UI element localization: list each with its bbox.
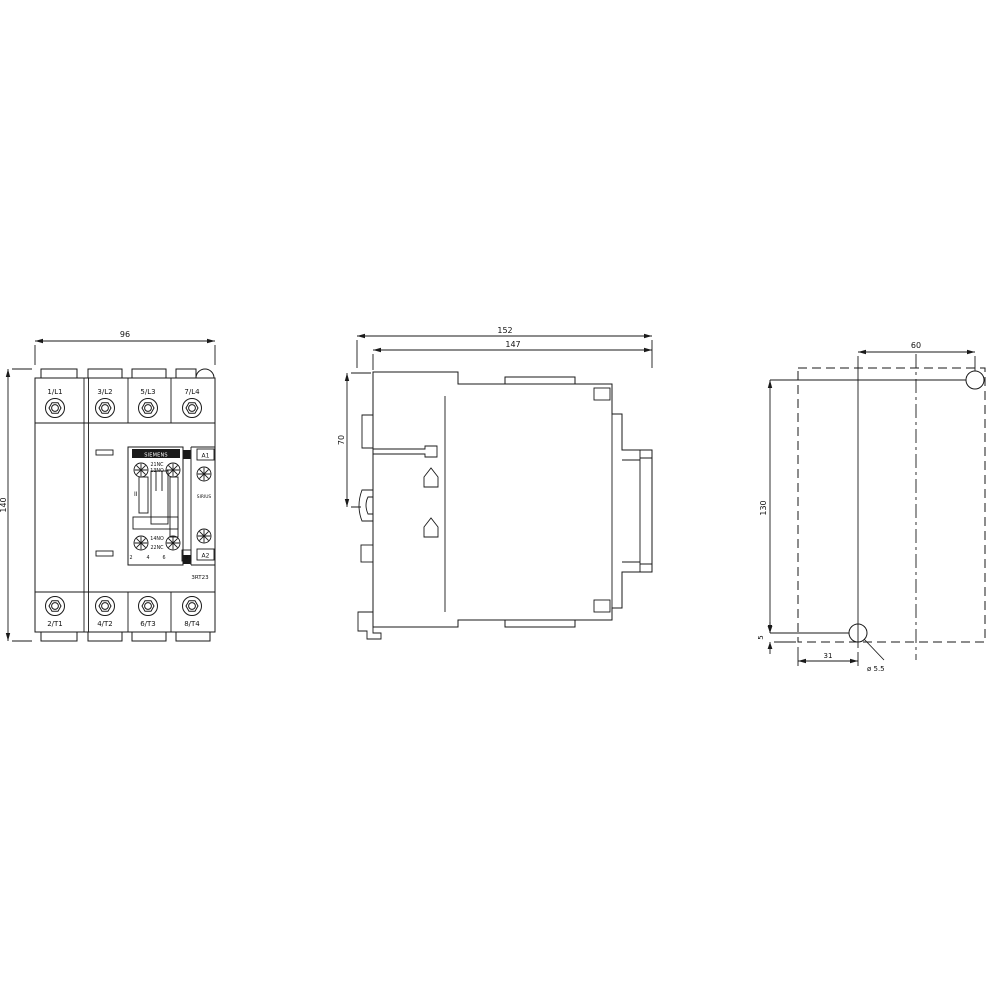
hole-edge-bottom-dimension: 5 [757,622,796,654]
mounting-hole-icon [966,371,984,389]
rail-clip [362,415,373,448]
arrowhead-icon [850,659,858,663]
side-rail-dimension: 70 [337,373,371,507]
hole-edge-side-label: 31 [824,652,833,660]
terminal-label: 3/L2 [97,388,112,396]
hole-edge-bottom-label: 5 [757,635,765,639]
coil-terminal-label: A1 [202,453,210,460]
arrowhead-icon [35,339,43,343]
connector-block [184,450,191,459]
brand-label: SIEMENS [144,453,168,459]
front-width-label: 96 [120,330,130,339]
hole-pitch-v-label: 130 [759,500,768,515]
side-detail [594,600,610,612]
vent-slot [96,551,113,556]
terminal-label: 4/T2 [97,620,113,628]
top-rib [505,377,575,384]
hole-diameter-label: ø 5.5 [867,665,885,673]
front-height-label: 140 [0,497,8,512]
aux-contact-label: 22NC [150,545,164,551]
side-detail [594,388,610,400]
screw-terminal-icon [96,399,115,418]
hole-pitch-h-dimension: 60 [858,341,975,371]
terminal-label: 6/T3 [140,620,156,628]
arrowhead-icon [207,339,215,343]
top-terminal-row: 1/L1 3/L2 5/L3 7/L4 [46,388,202,418]
screw-terminal-icon [46,597,65,616]
terminal-label: 8/T4 [184,620,200,628]
aux-screw-icon [134,463,148,477]
terminal-label: 2/T1 [47,620,63,628]
device-outline-dashed [798,368,985,642]
screw-terminal-icon [46,399,65,418]
vent-slot [96,450,113,455]
rail-clip [361,545,373,562]
mechanism-detail [151,471,168,524]
pole-digit: 2 [129,555,132,561]
screw-terminal-icon [139,597,158,616]
bottom-terminal-row: 2/T1 4/T2 6/T3 8/T4 [46,597,202,629]
screw-terminal-icon [183,399,202,418]
arrowhead-icon [644,334,652,338]
mechanism-detail [139,477,148,513]
screw-terminal-icon [183,597,202,616]
side-depth-body-dimension: 147 [373,340,652,370]
pole-digit: 8 [185,555,188,561]
bottom-rib [505,620,575,627]
mechanism-detail [156,471,162,491]
series-label: SIRIUS [197,494,212,500]
rail-hook [359,490,373,521]
mounting-view: 60 130 5 31 ø 5.5 [757,341,985,673]
arrowhead-icon [345,499,349,507]
hole-level-lines [770,380,966,633]
hole-pitch-h-label: 60 [911,341,921,350]
arrowhead-icon [858,350,866,354]
dimension-drawing: 96 140 1/L1 3/L2 5/L3 7/L4 [0,0,1000,1000]
drawing-sheet: 96 140 1/L1 3/L2 5/L3 7/L4 [0,0,1000,1000]
arrowhead-icon [798,659,806,663]
contactor-side-outline [373,372,652,627]
screw-terminal-icon [96,597,115,616]
arrowhead-icon [6,633,10,641]
pole-digit: 4 [146,555,149,561]
model-label: 3RT23 [191,575,209,581]
arrowhead-icon [373,348,381,352]
arrowhead-icon [768,642,773,649]
hole-pitch-v-dimension: 130 [759,380,772,633]
hole-diameter-callout: ø 5.5 [864,639,885,673]
side-rail-label: 70 [337,435,346,445]
pole-digit: 6 [162,555,165,561]
arrowhead-icon [357,334,365,338]
front-width-dimension: 96 [35,330,215,365]
arrowhead-icon [768,626,773,633]
coil-terminal-label: A2 [202,553,210,560]
coil-screw-icon [197,529,211,543]
aux-screw-icon [134,536,148,550]
din-rail-clips [358,415,437,639]
arrowhead-icon [768,380,772,388]
side-internal-lines [445,396,652,612]
corner-arc [196,369,214,378]
aux-contact-label: 14NO [150,536,164,542]
screw-terminal-icon [139,399,158,418]
arrowhead-icon [644,348,652,352]
nameplate-block: SIEMENS 21NC 13NO II 14NO 22NC 2 4 6 8 [128,447,215,581]
front-view: 96 140 1/L1 3/L2 5/L3 7/L4 [0,330,215,641]
terminal-label: 1/L1 [47,388,62,396]
side-depth-total-label: 152 [497,326,512,335]
hole-edge-side-dimension: 31 [798,647,858,666]
terminal-label: 7/L4 [184,388,200,396]
terminal-label: 5/L3 [140,388,155,396]
front-height-dimension: 140 [0,369,32,641]
rail-foot [358,612,381,639]
aux-contact-label: 21NC [150,462,164,468]
mechanism-detail [170,477,178,537]
latch-marker-icons [424,468,438,537]
size-marking: II [134,491,138,498]
coil-screw-icon [197,467,211,481]
arrowhead-icon [345,373,349,381]
label-window [133,517,178,529]
aux-screw-icon [166,536,180,550]
arrowhead-icon [967,350,975,354]
arrowhead-icon [6,369,10,377]
side-depth-body-label: 147 [505,340,520,349]
side-view: 152 147 70 [337,326,652,639]
release-lever [373,446,437,457]
